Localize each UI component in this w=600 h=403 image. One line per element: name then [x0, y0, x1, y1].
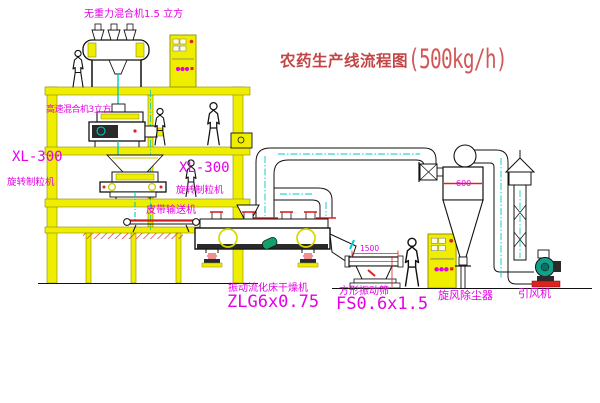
label-cyclone: 旋风除尘器 — [438, 290, 493, 301]
flow-diagram-page: 农药生产线流程图 (500kg/h) 无重力混合机1.5 立方 高速混合机3立方… — [0, 0, 600, 403]
label-granulator-model-1: XL-300 — [12, 150, 63, 164]
draft-fan — [532, 250, 561, 287]
label-high-speed-mixer: 高速混合机3立方 — [46, 106, 111, 115]
cyclone-outlet-elbow — [454, 145, 476, 167]
title-capacity: (500kg/h) — [408, 44, 507, 75]
fluid-bed-dryer — [195, 212, 330, 267]
control-cabinet-1 — [170, 35, 196, 87]
label-belt-conveyor: 皮带输送机 — [146, 206, 196, 216]
label-cyclone-dimension: 600 — [456, 180, 471, 188]
title-text: 农药生产线流程图 — [280, 49, 408, 71]
label-screen-model: FS0.6x1.5 — [336, 296, 428, 313]
worker-figure — [73, 50, 83, 87]
label-dryer-model: ZLG6x0.75 — [227, 294, 319, 311]
label-granulator-name-2: 旋转制粒机 — [176, 186, 224, 196]
label-granulator-name-1: 旋转制粒机 — [7, 178, 55, 188]
exhaust-duct — [252, 148, 436, 218]
control-cabinet-2 — [428, 234, 456, 288]
label-fan: 引风机 — [518, 288, 551, 299]
worker-figure — [208, 103, 220, 145]
label-screen-dimension: 1500 — [360, 245, 379, 253]
bucket-elevator-head — [231, 133, 252, 148]
vibrating-screen — [345, 251, 403, 289]
exhaust-stack — [506, 150, 534, 260]
foundation-hatch — [83, 233, 183, 239]
gravity-mixer — [83, 24, 149, 115]
label-granulator-model-2: XL-300 — [179, 161, 230, 175]
diagram-title: 农药生产线流程图 (500kg/h) — [280, 44, 545, 75]
worker-figure — [406, 238, 419, 286]
label-gravity-mixer: 无重力混合机1.5 立方 — [84, 10, 183, 20]
